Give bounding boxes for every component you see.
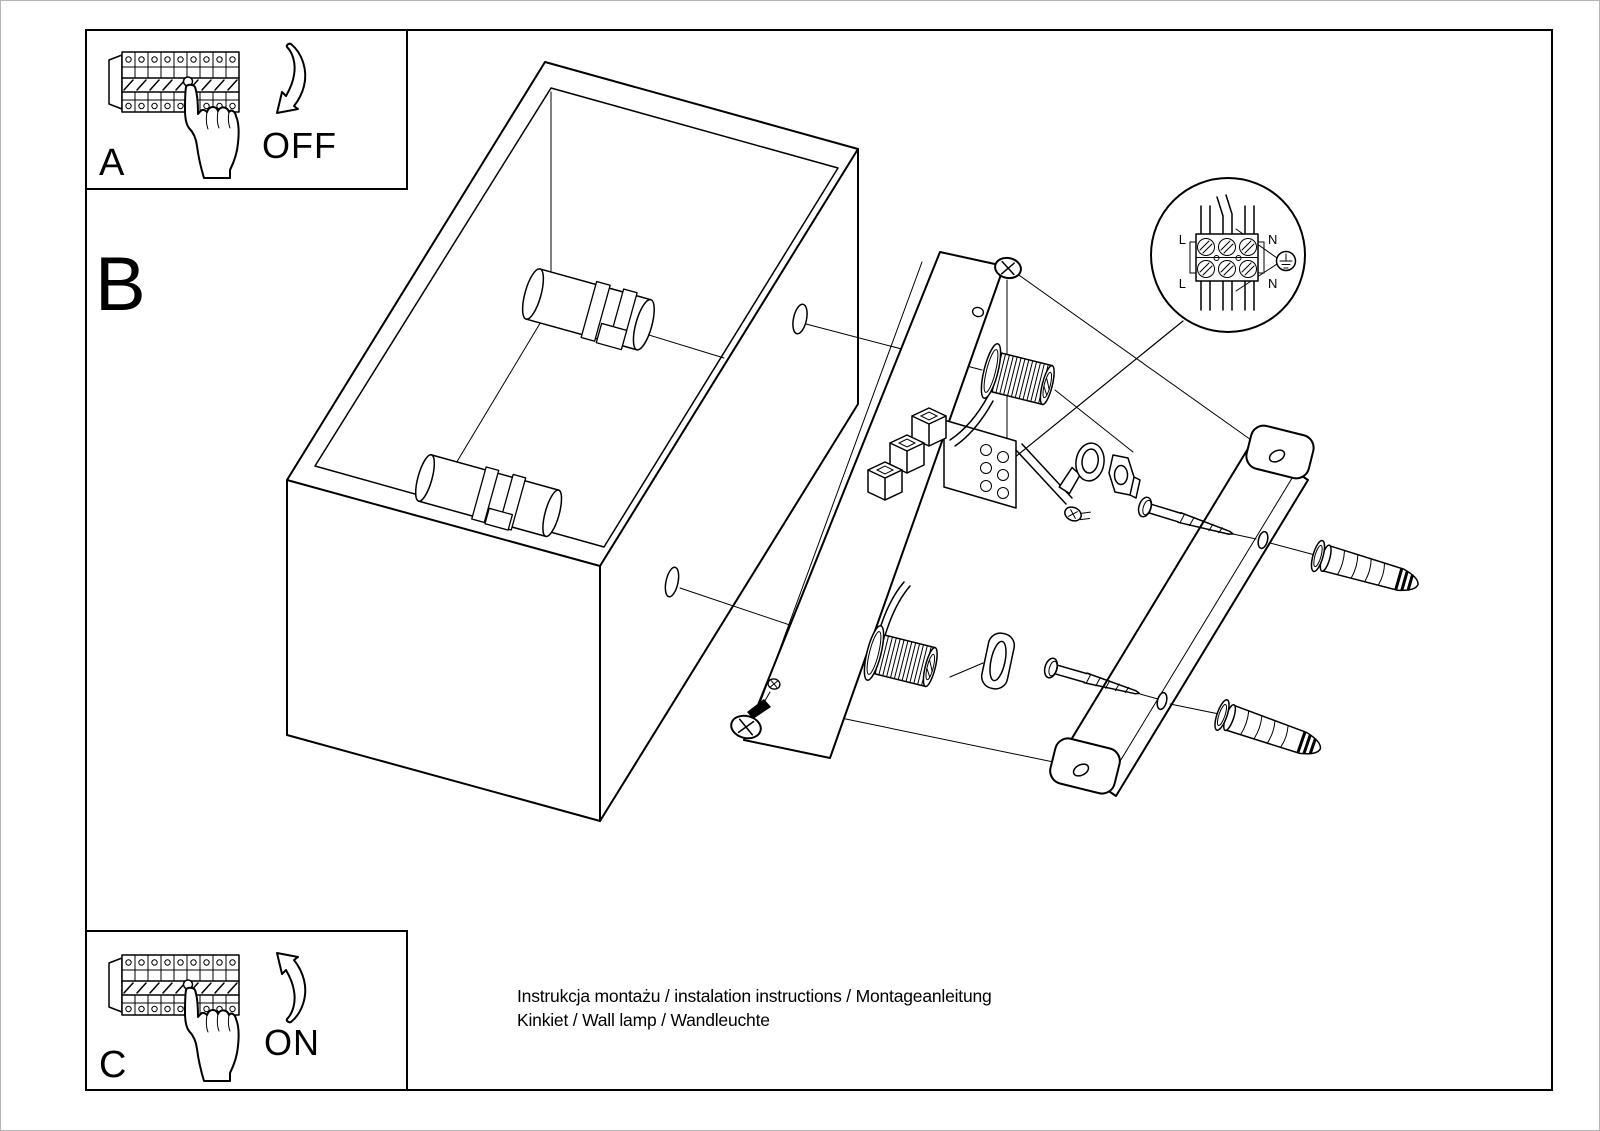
lamp-socket-lower [860, 624, 941, 695]
curved-arrow-down-icon [277, 44, 305, 113]
instruction-sheet: { "page": { "background": "#ffffff", "in… [0, 0, 1600, 1131]
lamp-socket-upper [977, 342, 1058, 413]
circuit-breaker-panel-icon [109, 52, 239, 112]
label-l-bottom: L [1179, 276, 1186, 291]
wall-anchor-upper [1309, 539, 1423, 600]
step-c-illustration [109, 953, 305, 1081]
exploded-assembly-diagram: L L N N [0, 0, 1600, 1131]
curved-arrow-up-icon [277, 953, 305, 1022]
wall-anchor-lower [1212, 698, 1325, 764]
ground-screw [1063, 502, 1093, 527]
wire-ground [1016, 444, 1072, 504]
step-a-illustration [109, 44, 305, 178]
label-l-top: L [1179, 232, 1186, 247]
label-n-top: N [1268, 232, 1277, 247]
label-n-bottom: N [1268, 276, 1277, 291]
wiring-detail-callout: L L N N [1151, 178, 1305, 332]
circuit-breaker-panel-icon [109, 955, 239, 1015]
oval-bezel [979, 631, 1016, 691]
ground-hardware [1059, 439, 1140, 527]
ring-terminal [1059, 439, 1107, 497]
hex-nut [1109, 455, 1140, 498]
